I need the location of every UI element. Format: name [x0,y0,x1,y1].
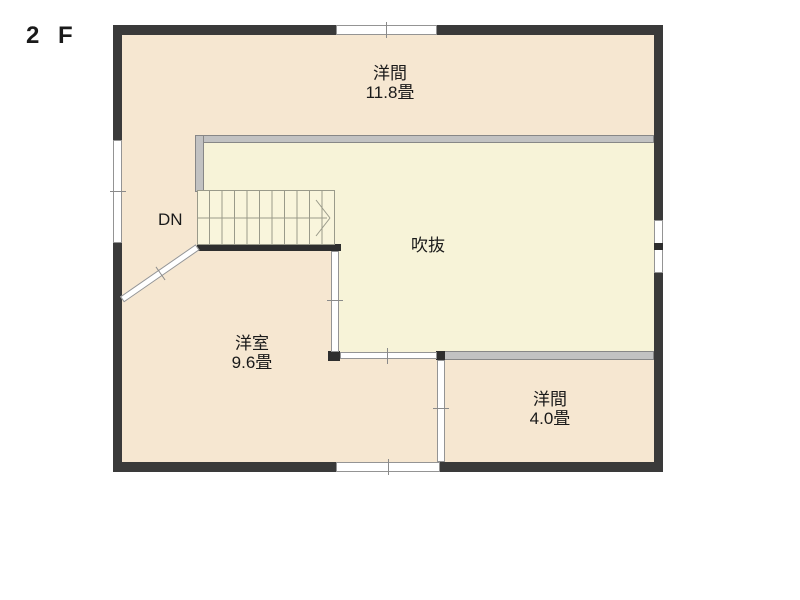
wall-post-right [436,351,445,360]
window-mullion [654,243,663,250]
room-label-void: 吹抜 [348,236,508,255]
window-tick [388,459,389,475]
staircase [197,190,335,245]
window-tick [386,22,387,38]
stair-bottom-wall [197,244,341,251]
room-size: 11.8畳 [310,83,470,102]
partition-tick [327,300,343,301]
partition-wall-void-top [195,135,654,143]
stairs-direction-label: DN [158,210,183,229]
partition-tick [387,348,388,364]
floor-plan-2f: 2 F [0,0,800,600]
partition-tick [433,408,449,409]
partition-wall-room-right-top [443,351,654,360]
room-label-bottom-left: 洋室 9.6畳 [172,334,332,372]
room-name: 洋間 [470,390,630,409]
room-name: 洋室 [172,334,332,353]
floor-label: 2 F [26,22,79,50]
room-label-bottom-right: 洋間 4.0畳 [470,390,630,428]
partition-room-divider [437,360,445,462]
room-size: 9.6畳 [172,353,332,372]
room-name: 吹抜 [348,236,508,255]
void-floor-lower [338,245,654,352]
room-label-top: 洋間 11.8畳 [310,64,470,102]
room-size: 4.0畳 [470,409,630,428]
partition-wall-void-left [195,135,204,192]
room-name: 洋間 [310,64,470,83]
partition-void-lowerleft [331,251,339,352]
window-tick [110,191,126,192]
partition-void-bottom [340,352,437,359]
